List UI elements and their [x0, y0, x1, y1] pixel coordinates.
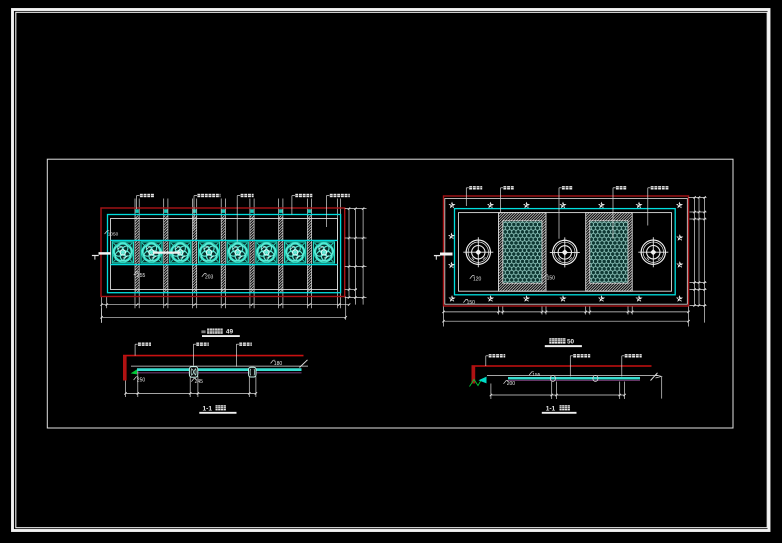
svg-text:155: 155 — [532, 372, 540, 377]
svg-text:150: 150 — [547, 276, 556, 282]
svg-text:49: 49 — [226, 329, 234, 336]
svg-text:150: 150 — [467, 300, 476, 306]
svg-text:120: 120 — [473, 276, 482, 282]
svg-text:255: 255 — [137, 273, 146, 279]
svg-text:245: 245 — [195, 379, 204, 385]
svg-text:203: 203 — [205, 274, 214, 280]
svg-text:50: 50 — [567, 339, 575, 346]
svg-text:1-1: 1-1 — [203, 406, 213, 413]
svg-text:200: 200 — [507, 381, 516, 387]
svg-text:180: 180 — [274, 361, 283, 367]
svg-text:1050: 1050 — [108, 231, 119, 236]
svg-text:1-1: 1-1 — [546, 405, 556, 412]
